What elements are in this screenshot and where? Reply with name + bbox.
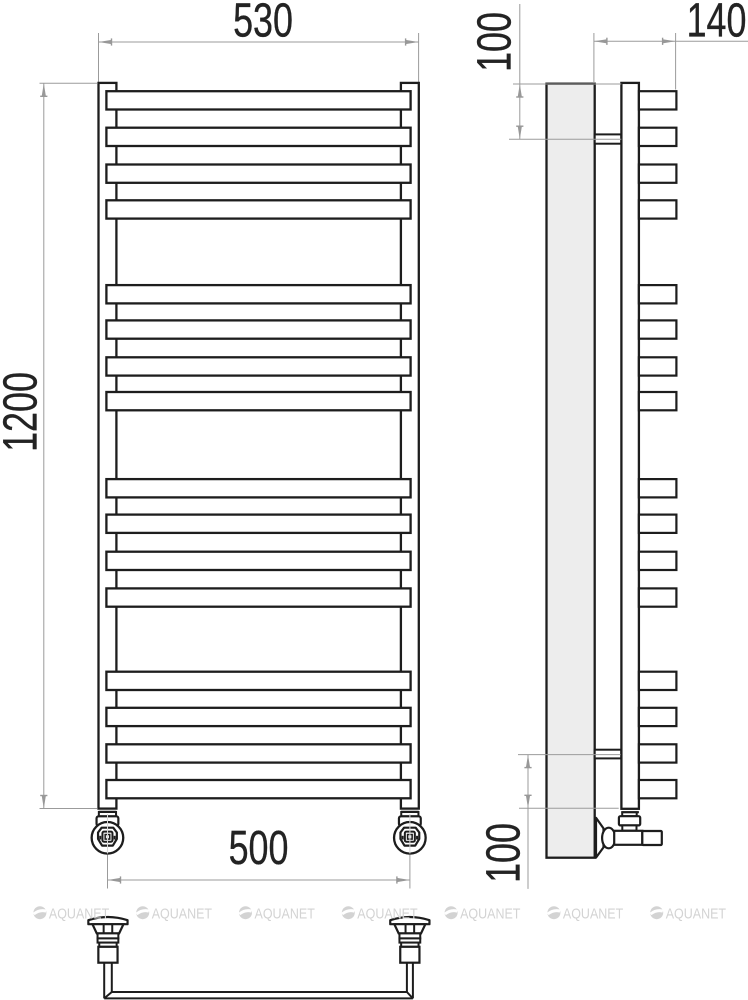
svg-text:500: 500 xyxy=(229,821,289,876)
svg-text:AQUANET: AQUANET xyxy=(666,905,727,921)
svg-text:AQUANET: AQUANET xyxy=(357,905,418,921)
svg-text:530: 530 xyxy=(233,0,293,48)
svg-text:AQUANET: AQUANET xyxy=(563,905,624,921)
svg-text:AQUANET: AQUANET xyxy=(152,905,213,921)
svg-text:AQUANET: AQUANET xyxy=(49,905,110,921)
svg-text:1200: 1200 xyxy=(0,372,48,452)
svg-text:AQUANET: AQUANET xyxy=(255,905,316,921)
svg-text:140: 140 xyxy=(687,0,747,48)
svg-text:100: 100 xyxy=(476,823,531,883)
svg-text:100: 100 xyxy=(467,12,522,72)
svg-text:AQUANET: AQUANET xyxy=(460,905,521,921)
